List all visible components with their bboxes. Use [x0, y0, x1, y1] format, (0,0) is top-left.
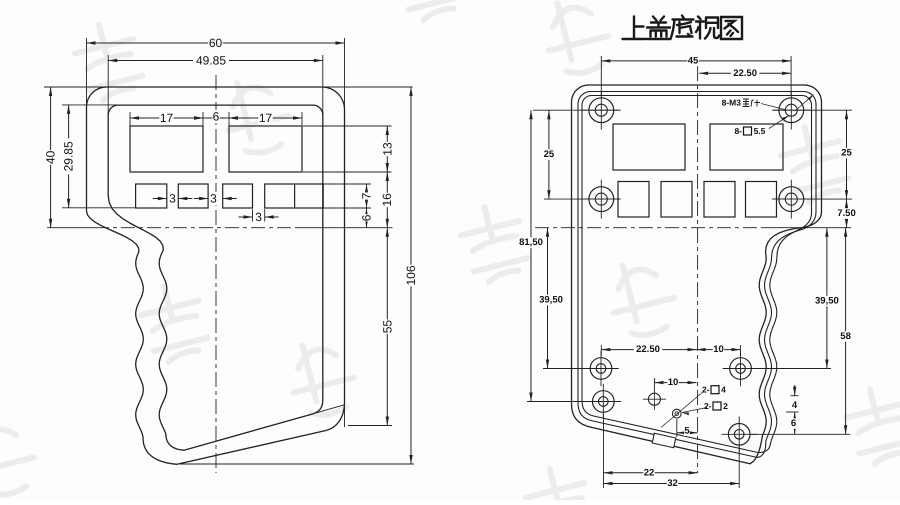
svg-text:40: 40 [44, 150, 58, 164]
svg-text:39,50: 39,50 [539, 295, 563, 306]
svg-text:2: 2 [723, 401, 728, 411]
svg-text:3: 3 [210, 192, 217, 206]
svg-text:22: 22 [644, 467, 655, 478]
svg-text:6: 6 [213, 110, 220, 124]
svg-text:10: 10 [668, 377, 679, 388]
svg-text:22.50: 22.50 [636, 344, 660, 355]
svg-text:13: 13 [380, 142, 394, 156]
svg-text:45: 45 [688, 55, 699, 66]
svg-text:16: 16 [380, 193, 394, 207]
svg-text:17: 17 [259, 111, 273, 125]
svg-text:3: 3 [169, 192, 176, 206]
svg-text:49.85: 49.85 [196, 54, 226, 68]
svg-text:25: 25 [841, 148, 852, 159]
svg-text:7: 7 [360, 192, 374, 199]
svg-text:3: 3 [255, 210, 262, 224]
svg-text:25: 25 [544, 149, 555, 160]
svg-text:22.50: 22.50 [733, 68, 757, 79]
svg-text:39,50: 39,50 [815, 296, 839, 307]
svg-text:17: 17 [160, 111, 174, 125]
svg-text:6: 6 [359, 214, 373, 221]
svg-text:2-: 2- [702, 385, 710, 395]
svg-text:2-: 2- [704, 401, 712, 411]
svg-text:10: 10 [713, 344, 724, 355]
svg-text:106: 106 [404, 265, 418, 285]
svg-text:81,50: 81,50 [519, 237, 543, 248]
svg-text:60: 60 [209, 36, 223, 50]
svg-text:55: 55 [380, 320, 394, 334]
svg-text:32: 32 [667, 478, 678, 489]
svg-text:8-: 8- [734, 126, 742, 136]
svg-text:5.5: 5.5 [754, 126, 766, 136]
svg-text:4: 4 [792, 400, 798, 411]
svg-text:5: 5 [684, 425, 690, 436]
svg-text:29.85: 29.85 [62, 141, 76, 171]
svg-text:6: 6 [791, 418, 796, 429]
svg-text:58: 58 [840, 331, 851, 342]
svg-text:4: 4 [721, 385, 726, 395]
svg-text:8-M3: 8-M3 [722, 97, 742, 107]
svg-text:7.50: 7.50 [837, 208, 856, 219]
